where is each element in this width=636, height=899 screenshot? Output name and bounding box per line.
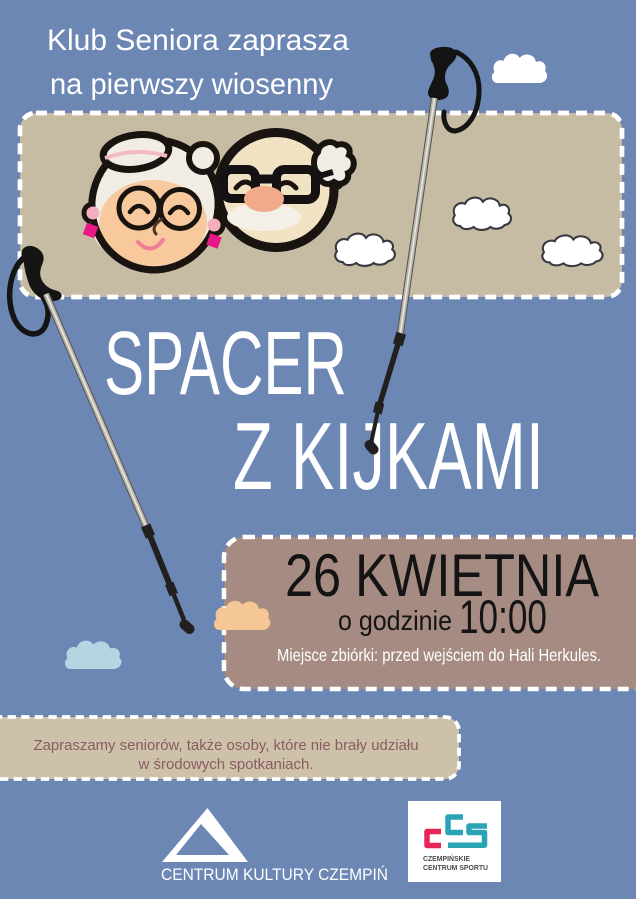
svg-text:Zapraszamy seniorów, także oso: Zapraszamy seniorów, także osoby, które …: [34, 737, 419, 754]
svg-text:Z KIJKAMI: Z KIJKAMI: [233, 403, 544, 510]
svg-text:CENTRUM SPORTU: CENTRUM SPORTU: [423, 863, 488, 872]
svg-text:CZEMPIŃSKIE: CZEMPIŃSKIE: [423, 854, 470, 863]
svg-text:na pierwszy wiosenny: na pierwszy wiosenny: [50, 68, 333, 101]
svg-text:26 KWIETNIA: 26 KWIETNIA: [285, 542, 599, 609]
svg-text:o godzinie: o godzinie: [338, 605, 452, 636]
svg-text:w środowych spotkaniach.: w środowych spotkaniach.: [137, 756, 313, 773]
svg-text:10:00: 10:00: [459, 590, 547, 643]
svg-text:SPACER: SPACER: [104, 314, 347, 414]
svg-text:Klub Seniora zaprasza: Klub Seniora zaprasza: [47, 24, 349, 57]
svg-text:Miejsce zbiórki: przed wejście: Miejsce zbiórki: przed wejściem do Hali …: [277, 645, 601, 665]
svg-text:CENTRUM KULTURY CZEMPIŃ: CENTRUM KULTURY CZEMPIŃ: [161, 865, 388, 884]
